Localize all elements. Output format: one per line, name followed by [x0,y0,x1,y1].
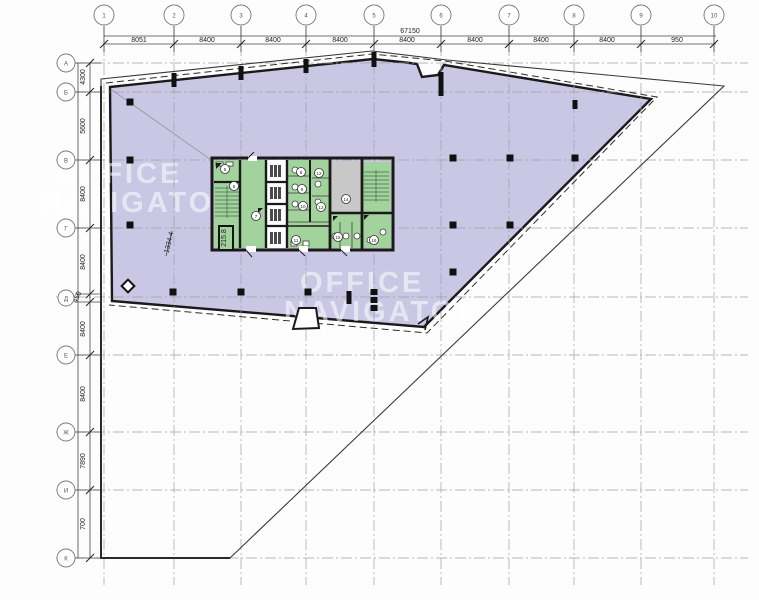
svg-text:К: К [64,557,68,563]
grid-bubbles-top [94,5,724,25]
svg-text:7890: 7890 [80,453,87,469]
svg-text:Б: Б [64,91,68,97]
svg-text:14: 14 [343,197,349,202]
floor-plan-viewport: OFFICE NAVIGATOR OFFICE NAVIGATOR [0,0,759,600]
svg-text:12: 12 [316,171,322,176]
watermark-left-line2: NAVIGATOR [42,187,238,219]
svg-text:8400: 8400 [80,186,87,202]
svg-text:15: 15 [335,235,341,240]
svg-text:8051: 8051 [131,37,147,44]
svg-text:И: И [64,489,68,495]
svg-text:16: 16 [371,238,377,243]
floor-plan-drawing: OFFICE NAVIGATOR OFFICE NAVIGATOR [0,0,759,600]
svg-text:8400: 8400 [80,321,87,337]
technical-room [330,161,362,213]
svg-text:13: 13 [318,205,324,210]
dimension-left: 4300 5600 8400 8400 450 8400 8400 7890 7… [72,59,101,562]
svg-text:8400: 8400 [265,37,281,44]
svg-text:5600: 5600 [80,118,87,134]
dimension-total-top: 67150 [400,28,420,35]
svg-text:4300: 4300 [80,69,87,85]
svg-text:700: 700 [80,518,87,530]
svg-text:8400: 8400 [199,37,215,44]
stair-area-label: 215.8 [221,229,228,247]
svg-text:8400: 8400 [80,254,87,270]
svg-text:8400: 8400 [599,37,615,44]
svg-text:Ж: Ж [63,431,69,437]
grid-bubble-labels-top: 1 2 3 4 5 6 7 8 9 10 [102,14,718,20]
svg-text:8400: 8400 [467,37,483,44]
svg-text:8400: 8400 [399,37,415,44]
watermark-left-line1: OFFICE [58,158,182,190]
svg-text:950: 950 [671,37,683,44]
svg-text:8400: 8400 [332,37,348,44]
svg-text:10: 10 [300,204,306,209]
svg-text:10: 10 [711,14,718,20]
dimension-top: 8051 8400 8400 8400 8400 8400 8400 8400 … [100,26,718,52]
svg-text:В: В [64,159,68,165]
svg-text:8400: 8400 [80,386,87,402]
watermark-center-line1: OFFICE [300,267,424,299]
svg-text:Е: Е [64,354,68,360]
svg-text:Д: Д [64,297,68,303]
svg-text:8400: 8400 [533,37,549,44]
svg-text:11: 11 [294,238,299,243]
svg-text:А: А [64,62,68,68]
